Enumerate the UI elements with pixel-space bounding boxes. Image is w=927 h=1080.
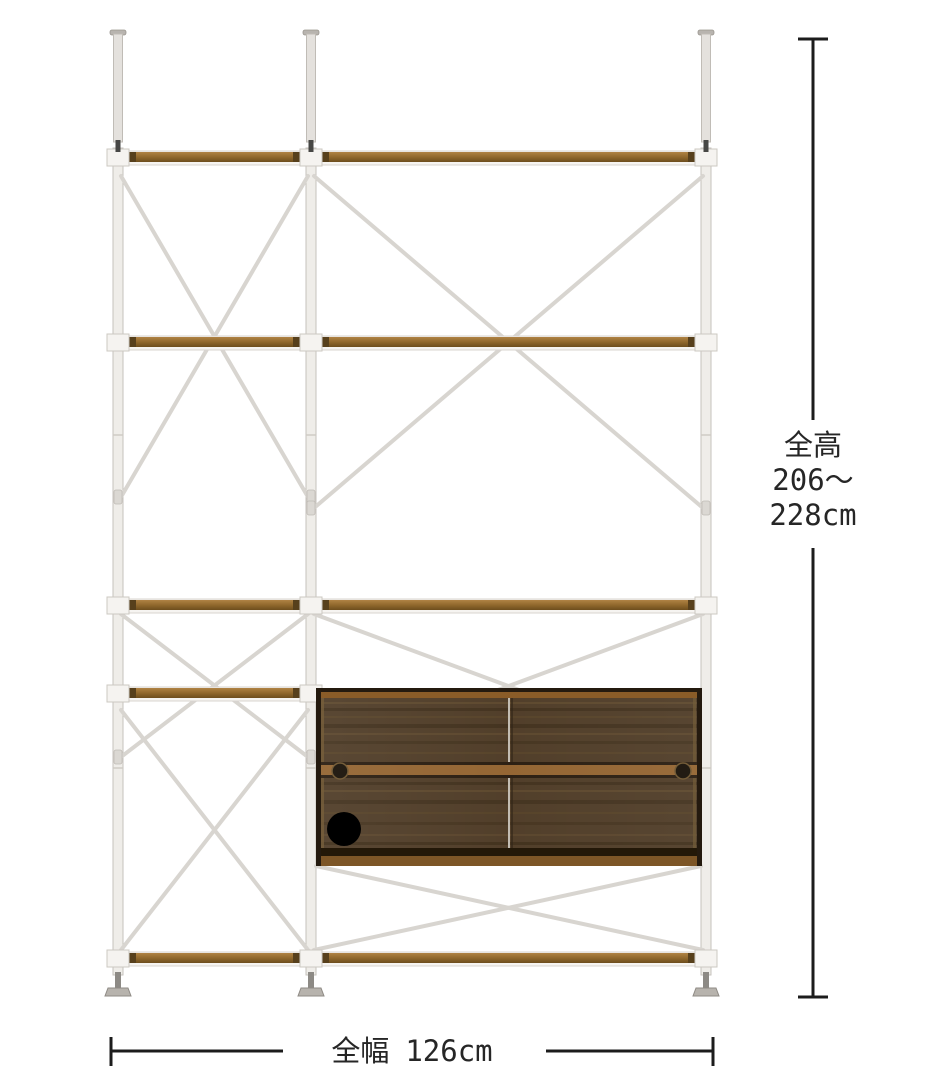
height-label-line2: 206〜 [772, 463, 853, 497]
cabinet-bottom-shadow [321, 848, 697, 856]
shelf-row-2 [107, 334, 717, 351]
tension-pole-top-left [110, 30, 126, 152]
wood-cabinet [316, 688, 702, 866]
height-label-line3: 228cm [769, 498, 856, 532]
height-dimension-label: 全高 206〜 228cm [769, 428, 856, 532]
shelf-row-4-left-bay [107, 685, 322, 702]
shelf-unit-drawing: 全高 206〜 228cm 全幅126cm [0, 0, 927, 1080]
glass-sheen [321, 698, 697, 852]
width-dimension-label: 全幅126cm [331, 1034, 492, 1068]
shelf-row-3 [107, 597, 717, 614]
shelf-row-1 [107, 149, 717, 166]
pole-left [113, 148, 123, 975]
pole-right [701, 148, 711, 975]
black-dot [327, 812, 361, 846]
tension-pole-tops [110, 30, 714, 152]
cabinet-bottom-sill [321, 856, 697, 866]
pole-middle [306, 148, 316, 975]
tension-pole-top-right [698, 30, 714, 152]
brace-rod [314, 614, 519, 690]
foot-left [105, 972, 131, 996]
foot-middle [298, 972, 324, 996]
height-dimension: 全高 206〜 228cm [769, 39, 856, 997]
product-dimension-diagram: 全高 206〜 228cm 全幅126cm [0, 0, 927, 1080]
width-dimension: 全幅126cm [111, 1034, 713, 1068]
height-label-line1: 全高 [784, 428, 842, 462]
cabinet-top-trim [321, 692, 697, 698]
brace-rod [498, 614, 703, 690]
foot-right [693, 972, 719, 996]
shelf-row-5 [107, 950, 717, 967]
tension-pole-top-middle [303, 30, 319, 152]
feet [105, 972, 719, 996]
